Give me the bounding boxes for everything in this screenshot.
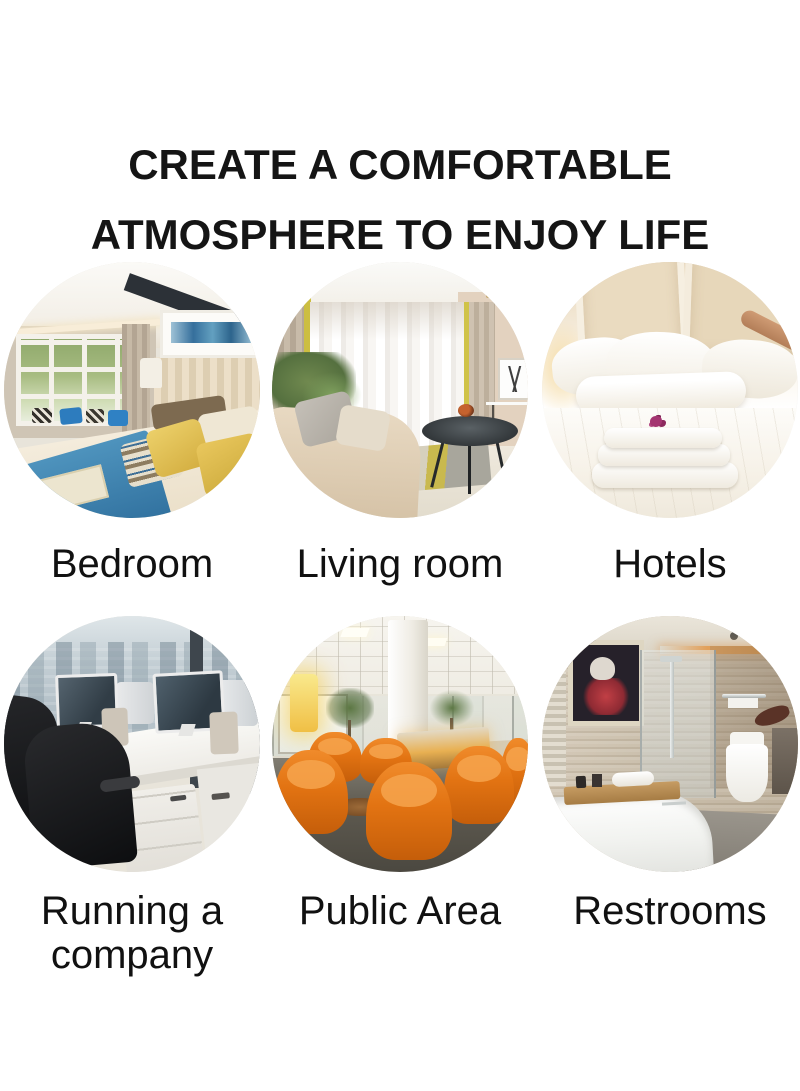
toiletry-bottle-shape xyxy=(576,776,587,789)
window-blind-shape xyxy=(542,672,566,786)
bedroom-artwork-shape xyxy=(160,310,260,358)
coffee-table-shape xyxy=(422,416,518,446)
bedroom-blue-pillow-shape xyxy=(59,407,83,425)
toilet-shape xyxy=(726,744,768,802)
orange-armchair-shape xyxy=(274,750,348,834)
bedroom-yellow-pillow-shape xyxy=(195,432,260,498)
chandelier-shape xyxy=(492,278,500,286)
public-area-photo xyxy=(272,616,528,872)
page-title-line1: CREATE A COMFORTABLE xyxy=(0,130,800,200)
gallery-item-running-a-company: Running a company xyxy=(4,616,260,977)
shower-head-shape xyxy=(660,656,682,662)
hotels-photo xyxy=(542,262,798,518)
bedroom-striped-pillow-shape xyxy=(32,408,52,423)
gallery-item-restrooms: Restrooms xyxy=(542,616,798,933)
bedroom-label: Bedroom xyxy=(4,542,260,586)
ceiling-light-shape xyxy=(340,628,369,637)
living-room-label: Living room xyxy=(272,542,528,586)
living-room-pillow-shape xyxy=(335,404,391,452)
drawer-cabinet-shape xyxy=(197,763,260,872)
bathroom-artwork-shape xyxy=(568,640,644,726)
toiletry-bottle-shape xyxy=(592,774,602,787)
living-room-photo xyxy=(272,262,528,518)
restrooms-label: Restrooms xyxy=(542,889,798,933)
promo-page: CREATE A COMFORTABLE ATMOSPHERE TO ENJOY… xyxy=(0,0,800,1091)
page-title-line2: ATMOSPHERE TO ENJOY LIFE xyxy=(0,200,800,270)
office-chair-shape xyxy=(22,720,138,871)
hand-towel-shape xyxy=(728,698,758,708)
shower-pipe-shape xyxy=(670,660,674,758)
orange-armchair-shape xyxy=(366,762,452,860)
gallery-item-bedroom: Bedroom xyxy=(4,262,260,586)
bedroom-blue-pillow-shape xyxy=(108,410,128,426)
yellow-floor-lamp-shape xyxy=(290,674,318,732)
folded-towel-shape xyxy=(604,428,722,448)
bedroom-striped-pillow-shape xyxy=(86,409,104,423)
page-title: CREATE A COMFORTABLE ATMOSPHERE TO ENJOY… xyxy=(0,130,800,270)
restrooms-photo xyxy=(542,616,798,872)
gallery-item-hotels: Hotels xyxy=(542,262,798,586)
rolled-towel-shape xyxy=(612,771,655,787)
public-area-label: Public Area xyxy=(272,889,528,933)
bedroom-lamp-shape xyxy=(140,358,162,388)
office-photo xyxy=(4,616,260,872)
table-flowers-shape xyxy=(458,404,474,417)
hotels-label: Hotels xyxy=(542,542,798,586)
gallery-item-living-room: Living room xyxy=(272,262,528,586)
running-a-company-label: Running a company xyxy=(4,889,260,977)
vanity-counter-shape xyxy=(772,728,798,794)
bedroom-photo xyxy=(4,262,260,518)
orange-armchair-shape xyxy=(444,746,514,824)
living-room-artwork-shape xyxy=(498,358,528,400)
coffee-table-leg-shape xyxy=(468,444,471,494)
desk-divider-shape xyxy=(209,712,238,755)
gallery-item-public-area: Public Area xyxy=(272,616,528,933)
